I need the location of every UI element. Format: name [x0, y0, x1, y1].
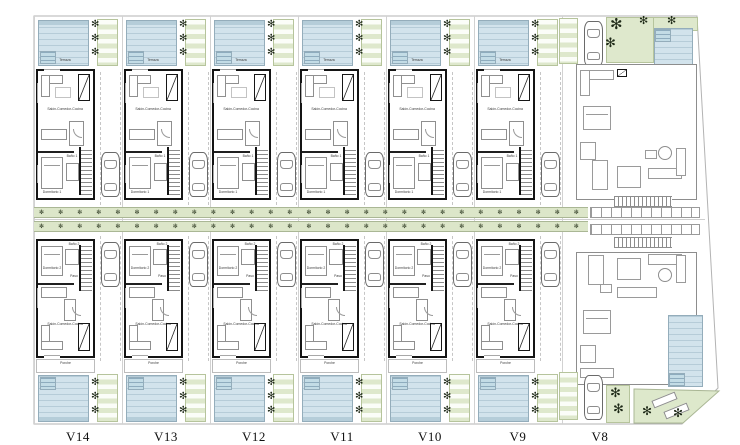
pool-edge — [127, 417, 176, 421]
villa-plot-v9: ✻ ✻ ✻ Terraza Salón-Comedor-Cocina Dormi… — [474, 0, 562, 445]
window — [301, 83, 304, 103]
pool — [478, 375, 529, 422]
villa-label: V11 — [298, 429, 386, 445]
pool-edge — [391, 417, 440, 421]
room-label-dorm2: Dormitorio 2 — [218, 267, 237, 271]
room-label-dorm2: Dormitorio 2 — [130, 267, 149, 271]
wardrobe — [342, 74, 354, 101]
room-label-salon: Salón-Comedor-Cocina — [47, 108, 82, 112]
palm-icon: ✻ — [443, 406, 451, 416]
kitchen-counter — [580, 70, 590, 96]
room-label-salon: Salón-Comedor-Cocina — [487, 108, 522, 112]
house-lower: Dormitorio 2 Baño 2 Paso Salón-Comedor-C… — [388, 239, 447, 358]
sofa — [676, 148, 686, 176]
bathroom-fixtures — [241, 249, 255, 265]
green-slat-strip — [97, 374, 118, 422]
window — [220, 69, 236, 72]
pool-edge — [479, 21, 528, 25]
palm-icon: ✻ — [531, 378, 539, 388]
stairs — [255, 147, 268, 195]
room-label-dorm1: Dormitorio 1 — [42, 191, 61, 195]
bathroom-fixtures — [154, 163, 167, 181]
palm-icon: ✻ — [443, 48, 451, 58]
green-slat-strip — [361, 19, 382, 66]
villa-label: V9 — [474, 429, 562, 445]
sofa — [393, 75, 402, 97]
bathroom-fixtures — [153, 249, 167, 265]
pergola-row — [590, 224, 700, 235]
room-label-terraza: Terraza — [220, 59, 262, 63]
room-label-terraza: Terraza — [132, 59, 174, 63]
bed — [41, 157, 63, 189]
room-label-terraza: Terraza — [308, 59, 350, 63]
bed — [217, 157, 239, 189]
interior-wall — [390, 151, 426, 153]
palm-icon: ✻ — [531, 406, 539, 416]
palm-icon: ✻ — [267, 20, 275, 30]
side-table — [645, 150, 657, 159]
room-label-bano1: Baño 1 — [505, 155, 519, 159]
pool-edge — [215, 21, 264, 25]
room-label-dorm1: Dormitorio 1 — [130, 191, 149, 195]
car — [101, 242, 120, 287]
window — [213, 83, 216, 103]
porch: Porche — [476, 359, 535, 373]
stairs — [614, 237, 672, 248]
car — [453, 242, 472, 287]
site-plan-canvas: ✻✻✻✻✻✻✻✻✻✻✻✻✻✻✻✻✻✻✻✻✻✻✻✻✻✻✻✻✻ ✻✻✻✻✻✻✻✻✻✻… — [0, 0, 740, 445]
stairs — [519, 245, 532, 291]
wardrobe — [342, 323, 354, 351]
room-label-dorm1: Dormitorio 1 — [306, 191, 325, 195]
porch: Porche — [36, 359, 95, 373]
room-label-bano1: Baño 1 — [153, 155, 167, 159]
room-label-paso: Paso — [331, 275, 345, 279]
palm-icon: ✻ — [667, 16, 676, 26]
kitchen-counter — [305, 287, 331, 298]
room-label-dorm2: Dormitorio 2 — [482, 267, 501, 271]
kitchen-counter — [41, 129, 67, 140]
house-lower: Dormitorio 2 Baño 2 Paso Salón-Comedor-C… — [124, 239, 183, 358]
villa-plot-v14: ✻ ✻ ✻ Terraza Salón-Comedor-Cocina Dormi… — [34, 0, 122, 445]
palm-icon: ✻ — [642, 406, 652, 416]
window — [477, 83, 480, 103]
sofa — [217, 75, 226, 97]
palm-icon: ✻ — [443, 34, 451, 44]
stairs — [255, 245, 268, 291]
car — [365, 242, 384, 287]
window — [132, 69, 148, 72]
porch: Porche — [124, 359, 183, 373]
pool-edge — [479, 417, 528, 421]
pool-edge — [303, 21, 352, 25]
driveway-line — [296, 236, 297, 361]
bed — [481, 246, 503, 276]
window — [477, 165, 480, 183]
sofa — [481, 75, 490, 97]
pool — [390, 375, 441, 422]
pool-edge — [215, 417, 264, 421]
stairs — [519, 147, 532, 195]
palm-icon: ✻ — [531, 392, 539, 402]
wardrobe — [430, 323, 442, 351]
car — [541, 242, 560, 287]
room-label-terraza: Terraza — [484, 59, 526, 63]
palm-icon: ✻ — [610, 20, 623, 30]
driveway-line — [120, 236, 121, 361]
car — [277, 152, 296, 197]
window — [125, 288, 128, 308]
house-upper: Salón-Comedor-Cocina Dormitorio 1 Baño 1 — [388, 69, 447, 200]
stairs — [614, 196, 672, 207]
car — [189, 242, 208, 287]
window — [37, 83, 40, 103]
kitchen-counter — [481, 287, 507, 298]
bed — [393, 157, 415, 189]
interior-wall — [478, 283, 514, 285]
pool-steps — [128, 377, 144, 390]
wardrobe — [617, 69, 627, 77]
villa-plot-v12: ✻ ✻ ✻ Terraza Salón-Comedor-Cocina Dormi… — [210, 0, 298, 445]
interior-wall — [390, 283, 426, 285]
house-upper: Salón-Comedor-Cocina Dormitorio 1 Baño 1 — [300, 69, 359, 200]
stairs — [431, 147, 444, 195]
driveway-line — [472, 72, 473, 205]
car — [101, 152, 120, 197]
car — [584, 21, 603, 66]
interior-wall — [38, 151, 74, 153]
window — [125, 165, 128, 183]
kitchen-island — [592, 160, 608, 190]
driveway-line — [296, 72, 297, 205]
round-table — [658, 146, 672, 160]
house-upper: Salón-Comedor-Cocina Dormitorio 1 Baño 1 — [124, 69, 183, 200]
rug — [407, 87, 423, 98]
palm-icon: ✻ — [267, 406, 275, 416]
car — [541, 152, 560, 197]
pool-steps — [304, 377, 320, 390]
window — [44, 355, 60, 358]
dining-table — [617, 258, 641, 280]
window — [132, 355, 148, 358]
window — [484, 355, 500, 358]
interior-wall — [214, 151, 250, 153]
wardrobe — [518, 323, 530, 351]
room-label-dorm1: Dormitorio 1 — [218, 191, 237, 195]
driveway-line — [384, 236, 385, 361]
interior-wall — [126, 151, 162, 153]
stairs — [343, 245, 356, 291]
window — [389, 288, 392, 308]
wardrobe — [166, 74, 178, 101]
sofa — [41, 341, 63, 350]
interior-wall — [38, 283, 74, 285]
stairs — [431, 245, 444, 291]
bathroom-fixtures — [66, 163, 79, 181]
car — [584, 375, 603, 420]
palm-icon: ✻ — [91, 406, 99, 416]
window — [389, 165, 392, 183]
rug — [55, 87, 71, 98]
bed — [583, 106, 611, 130]
driveway-line — [120, 72, 121, 205]
palm-icon: ✻ — [267, 48, 275, 58]
car — [453, 152, 472, 197]
stairs — [79, 245, 92, 291]
villa-plot-v11: ✻ ✻ ✻ Terraza Salón-Comedor-Cocina Dormi… — [298, 0, 386, 445]
wardrobe — [78, 74, 90, 101]
pool-steps — [669, 373, 685, 386]
palm-icon: ✻ — [639, 16, 648, 26]
window — [44, 69, 60, 72]
pool-edge — [39, 21, 88, 25]
house-upper: Salón-Comedor-Cocina Dormitorio 1 Baño 1 — [36, 69, 95, 200]
palm-icon: ✻ — [267, 34, 275, 44]
stairs — [79, 147, 92, 195]
palm-icon: ✻ — [267, 392, 275, 402]
green-slat-strip — [185, 19, 206, 66]
green-slat-strip — [449, 374, 470, 422]
pergola-row — [590, 207, 700, 218]
porch: Porche — [300, 359, 359, 373]
bed — [393, 246, 415, 276]
bathroom-fixtures — [418, 163, 431, 181]
pool-steps — [392, 377, 408, 390]
pool — [214, 375, 265, 422]
dining-table — [617, 166, 641, 188]
room-label-porche: Porche — [310, 362, 349, 366]
palm-icon: ✻ — [179, 48, 187, 58]
rug — [143, 87, 159, 98]
driveway-line — [560, 236, 561, 361]
window — [389, 83, 392, 103]
palm-icon: ✻ — [91, 48, 99, 58]
room-label-paso: Paso — [67, 275, 81, 279]
house-lower: Dormitorio 2 Baño 2 Paso Salón-Comedor-C… — [36, 239, 95, 358]
palm-icon: ✻ — [605, 38, 616, 48]
window — [37, 288, 40, 308]
car — [365, 152, 384, 197]
porch: Porche — [212, 359, 271, 373]
bathroom-fixtures — [242, 163, 255, 181]
pool-edge — [127, 21, 176, 25]
wardrobe — [166, 323, 178, 351]
sofa — [393, 341, 415, 350]
rug — [495, 87, 511, 98]
room-label-terraza: Terraza — [396, 59, 438, 63]
pool-edge — [303, 417, 352, 421]
room-label-dorm1: Dormitorio 1 — [482, 191, 501, 195]
window — [477, 288, 480, 308]
driveway-line — [208, 236, 209, 361]
bed — [583, 310, 611, 334]
villa-plot-v8: ✻ ✻ ✻ ✻ — [562, 0, 740, 445]
pool — [126, 375, 177, 422]
room-label-paso: Paso — [507, 275, 521, 279]
palm-icon: ✻ — [355, 20, 363, 30]
kitchen-counter — [129, 287, 155, 298]
palm-icon: ✻ — [355, 34, 363, 44]
house-lower: Dormitorio 2 Baño 2 Paso Salón-Comedor-C… — [300, 239, 359, 358]
kitchen-counter — [481, 129, 507, 140]
window — [308, 69, 324, 72]
side-table — [600, 284, 612, 293]
room-label-bano1: Baño 1 — [417, 155, 431, 159]
bathroom-fixtures — [580, 142, 596, 160]
green-slat-strip — [273, 19, 294, 66]
villa-plot-v13: ✻ ✻ ✻ Terraza Salón-Comedor-Cocina Dormi… — [122, 0, 210, 445]
room-label-bano1: Baño 1 — [329, 155, 343, 159]
rug — [319, 87, 335, 98]
green-slat-strip — [559, 18, 578, 64]
bathroom-fixtures — [330, 163, 343, 181]
palm-icon: ✻ — [355, 48, 363, 58]
palm-icon: ✻ — [355, 392, 363, 402]
palm-icon: ✻ — [613, 404, 624, 414]
bathroom-fixtures — [329, 249, 343, 265]
window — [396, 69, 412, 72]
wardrobe — [254, 323, 266, 351]
car — [277, 242, 296, 287]
stairs — [167, 147, 180, 195]
room-label-salon: Salón-Comedor-Cocina — [223, 108, 258, 112]
pool-steps — [216, 377, 232, 390]
stairs — [343, 147, 356, 195]
pool-steps — [655, 29, 671, 42]
room-label-dorm1: Dormitorio 1 — [394, 191, 413, 195]
palm-icon: ✻ — [179, 378, 187, 388]
interior-wall — [302, 151, 338, 153]
interior-wall — [214, 283, 250, 285]
palm-icon: ✻ — [91, 20, 99, 30]
green-slat-strip — [537, 19, 558, 66]
pool-steps — [40, 377, 56, 390]
room-label-paso: Paso — [155, 275, 169, 279]
round-table — [658, 268, 672, 282]
room-label-salon: Salón-Comedor-Cocina — [135, 108, 170, 112]
wardrobe — [254, 74, 266, 101]
palm-icon: ✻ — [443, 392, 451, 402]
room-label-paso: Paso — [243, 275, 257, 279]
sofa — [129, 341, 151, 350]
palm-icon: ✻ — [179, 20, 187, 30]
driveway-line — [384, 72, 385, 205]
sofa — [676, 255, 686, 283]
pool-edge — [39, 417, 88, 421]
driveway-line — [208, 72, 209, 205]
palm-icon: ✻ — [531, 20, 539, 30]
villa-label: V13 — [122, 429, 210, 445]
green-slat-strip — [97, 19, 118, 66]
porch: Porche — [388, 359, 447, 373]
room-label-salon: Salón-Comedor-Cocina — [311, 108, 346, 112]
green-slat-strip — [449, 19, 470, 66]
pool — [668, 315, 703, 387]
villa-label: V12 — [210, 429, 298, 445]
green-slat-strip — [273, 374, 294, 422]
window — [37, 165, 40, 183]
palm-icon: ✻ — [91, 34, 99, 44]
room-label-porche: Porche — [46, 362, 85, 366]
window — [308, 355, 324, 358]
room-label-porche: Porche — [134, 362, 173, 366]
sofa — [481, 341, 503, 350]
palm-icon: ✻ — [673, 408, 683, 418]
palm-icon: ✻ — [179, 34, 187, 44]
room-label-terraza: Terraza — [44, 59, 86, 63]
bed — [129, 246, 151, 276]
palm-icon: ✻ — [531, 34, 539, 44]
window — [301, 288, 304, 308]
room-label-paso: Paso — [419, 275, 433, 279]
bathroom-fixtures — [506, 163, 519, 181]
sofa — [305, 75, 314, 97]
room-label-dorm2: Dormitorio 2 — [42, 267, 61, 271]
room-label-porche: Porche — [398, 362, 437, 366]
kitchen-counter — [217, 129, 243, 140]
bed — [41, 246, 63, 276]
sofa — [41, 75, 50, 97]
interior-wall — [126, 283, 162, 285]
sofa — [217, 341, 239, 350]
house-lower: Dormitorio 2 Baño 2 Paso Salón-Comedor-C… — [476, 239, 535, 358]
room-label-dorm2: Dormitorio 2 — [306, 267, 325, 271]
kitchen-counter — [305, 129, 331, 140]
kitchen-counter — [41, 287, 67, 298]
palm-icon: ✻ — [531, 48, 539, 58]
room-label-porche: Porche — [222, 362, 261, 366]
stairs — [167, 245, 180, 291]
pool-edge — [391, 21, 440, 25]
palm-icon: ✻ — [610, 388, 621, 398]
bed — [305, 157, 327, 189]
car — [189, 152, 208, 197]
interior-wall — [302, 283, 338, 285]
driveway-line — [560, 72, 561, 205]
house-upper: Salón-Comedor-Cocina Dormitorio 1 Baño 1 — [476, 69, 535, 200]
room-label-porche: Porche — [486, 362, 525, 366]
bed — [129, 157, 151, 189]
bathroom-fixtures — [505, 249, 519, 265]
bathroom-fixtures — [417, 249, 431, 265]
rug — [231, 87, 247, 98]
villa-label: V8 — [556, 429, 644, 445]
kitchen-counter — [129, 129, 155, 140]
green-slat-strip — [361, 374, 382, 422]
green-slat-strip — [537, 374, 558, 422]
kitchen-counter — [217, 287, 243, 298]
window — [125, 83, 128, 103]
villa-label: V14 — [34, 429, 122, 445]
sofa — [305, 341, 327, 350]
kitchen-island — [588, 255, 604, 285]
window — [301, 165, 304, 183]
window — [220, 355, 236, 358]
palm-icon: ✻ — [355, 378, 363, 388]
pool — [302, 375, 353, 422]
house-upper: Salón-Comedor-Cocina Dormitorio 1 Baño 1 — [212, 69, 271, 200]
interior-wall — [478, 151, 514, 153]
window — [213, 288, 216, 308]
green-slat-strip — [185, 374, 206, 422]
palm-icon: ✻ — [179, 406, 187, 416]
kitchen-counter — [393, 287, 419, 298]
wardrobe — [518, 74, 530, 101]
bed — [481, 157, 503, 189]
sofa — [129, 75, 138, 97]
bathroom-fixtures — [580, 345, 596, 363]
driveway-line — [472, 236, 473, 361]
